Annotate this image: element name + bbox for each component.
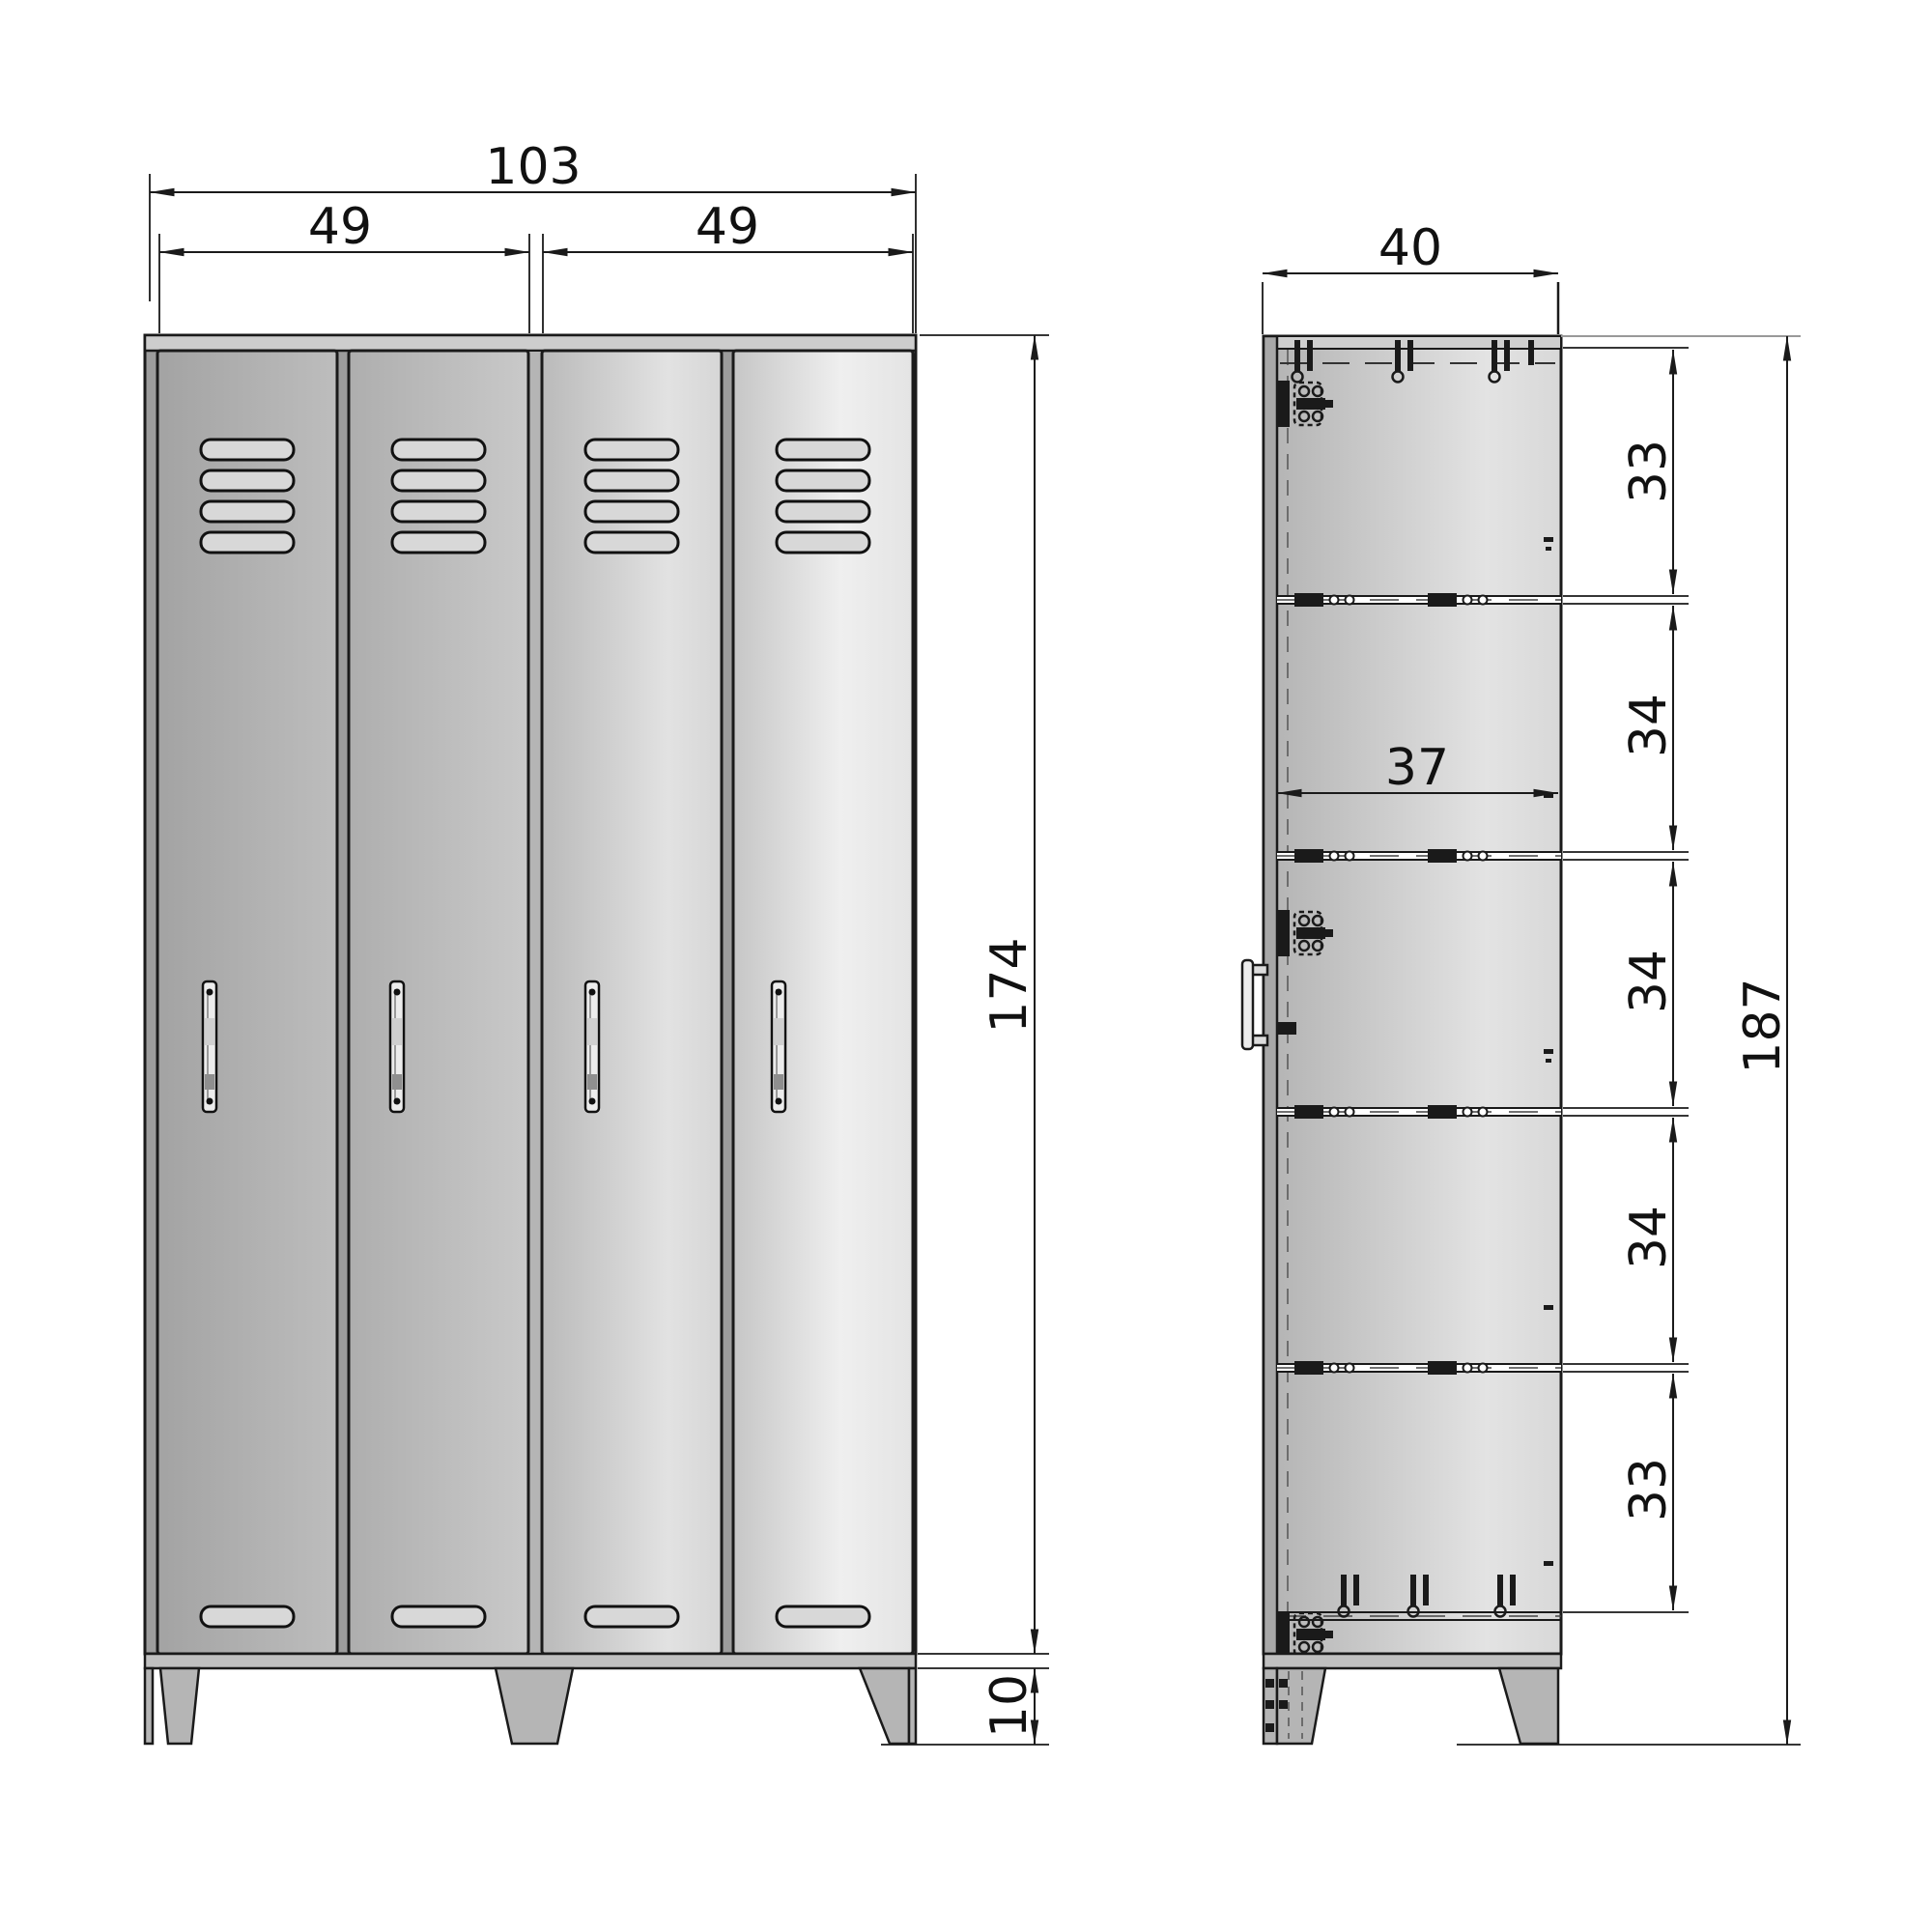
front-base-strip [145,1654,916,1668]
locker-technical-drawing-page: 103 49 49 174 10 40 37 33 34 34 34 [0,0,1932,1932]
side-door-edge [1264,336,1277,1654]
side-body-panel [1264,336,1561,1654]
side-view [1242,336,1561,1744]
dim-front-body-height: 174 [980,937,1038,1033]
front-center-foot [496,1668,573,1744]
dim-side-inner-depth: 37 [1385,739,1449,797]
dim-front-left-bay-width: 49 [308,198,372,256]
door1-handle [203,981,216,1112]
front-feet [145,1668,916,1744]
side-base-strip [1264,1654,1561,1668]
dim-front-feet-height: 10 [980,1674,1038,1738]
dim-side-overall-height: 187 [1734,978,1792,1073]
dim-side-section-5: 33 [1620,1458,1678,1521]
dim-side-section-1: 33 [1620,440,1678,503]
front-top-cap [145,335,916,351]
technical-drawing: 103 49 49 174 10 40 37 33 34 34 34 [0,0,1932,1932]
dim-side-depth: 40 [1378,219,1442,277]
dim-front-overall-width: 103 [485,138,581,196]
dim-side-section-3: 34 [1620,950,1678,1013]
dim-front-right-bay-width: 49 [696,198,759,256]
door2-handle [390,981,404,1112]
front-left-foot [160,1668,199,1744]
dim-side-section-2: 34 [1620,694,1678,757]
front-view [145,335,916,1744]
front-right-foot [860,1668,909,1744]
front-left-panel-leg [145,1668,153,1744]
door4-handle [772,981,785,1112]
side-feet [1264,1668,1558,1744]
front-center-partition [528,351,542,1654]
side-rear-foot [1499,1668,1558,1744]
door3-handle [585,981,599,1112]
front-right-panel-leg [909,1668,916,1744]
dim-side-section-4: 34 [1620,1206,1678,1269]
